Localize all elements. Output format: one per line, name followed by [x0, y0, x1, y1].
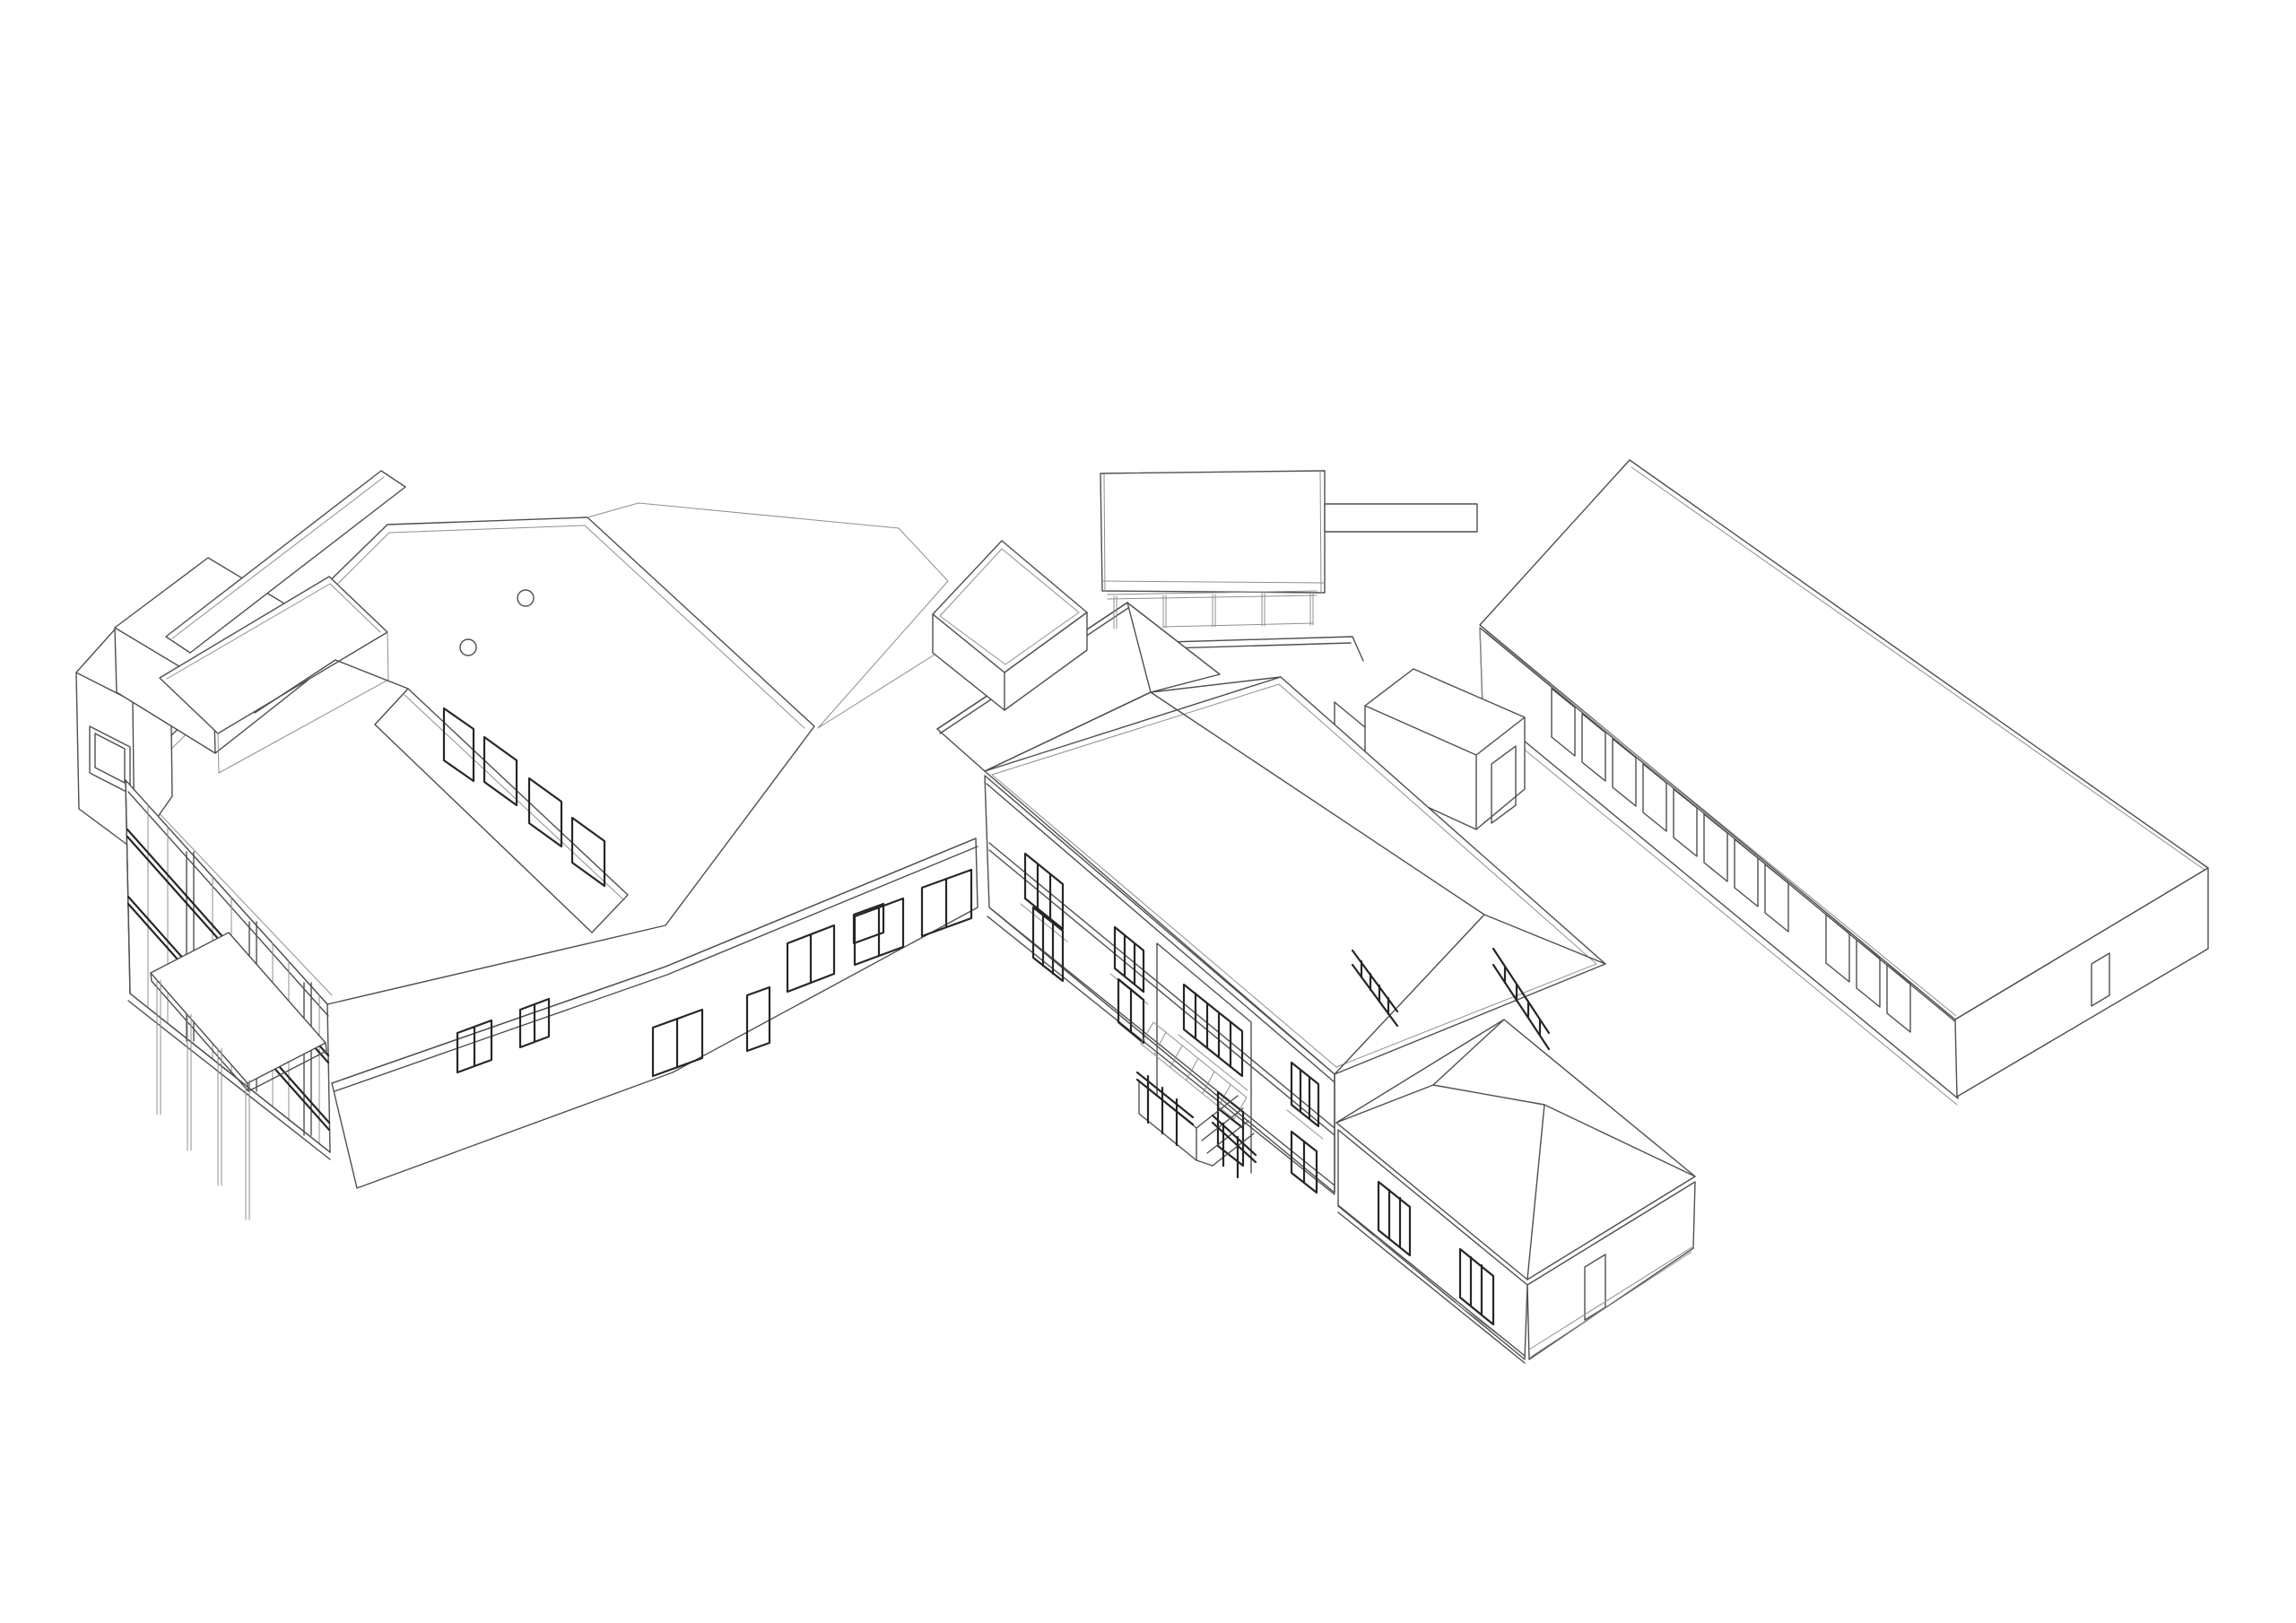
- side-arm: [1325, 504, 1477, 532]
- left-complex: [76, 471, 978, 1219]
- right-building: [1480, 460, 2208, 1105]
- architectural-axonometric-drawing: [0, 0, 2296, 1623]
- panel-face: [1100, 471, 1325, 593]
- drawing-stage: [0, 0, 2296, 1623]
- billboard: [1100, 471, 1477, 629]
